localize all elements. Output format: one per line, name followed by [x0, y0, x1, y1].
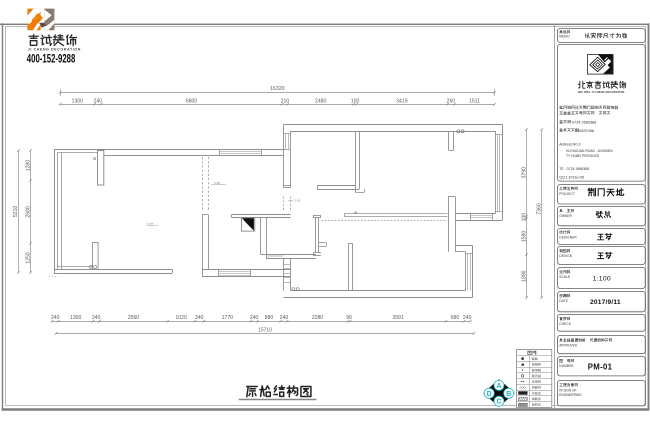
svg-text:400-152-9288: 400-152-9288	[27, 53, 76, 66]
svg-text:340: 340	[195, 315, 204, 321]
svg-text:1770: 1770	[222, 315, 233, 321]
svg-text:240: 240	[463, 315, 472, 321]
svg-text:CHECK: CHECK	[559, 322, 571, 326]
svg-text:B: B	[506, 391, 511, 398]
svg-text:5210: 5210	[13, 206, 19, 217]
svg-text:2280: 2280	[312, 315, 323, 321]
svg-text:D: D	[487, 391, 492, 398]
svg-text:HUYAGUAN ROAD , JINGMEN: HUYAGUAN ROAD , JINGMEN	[566, 149, 613, 153]
svg-text:TE : 0724 2689388: TE : 0724 2689388	[559, 167, 589, 171]
svg-text:3790: 3790	[521, 167, 527, 178]
svg-text:3591: 3591	[392, 315, 403, 321]
svg-text:2480: 2480	[315, 99, 326, 105]
svg-text:1890: 1890	[521, 270, 527, 281]
svg-text:210: 210	[281, 99, 290, 105]
svg-text:OWNER: OWNER	[559, 214, 572, 218]
svg-text:NUMBER: NUMBER	[559, 364, 574, 368]
svg-text:SCALE: SCALE	[559, 275, 570, 279]
svg-text:k.zal: k.zal	[147, 221, 154, 225]
svg-text:540837066: 540837066	[575, 129, 594, 133]
svg-text:A: A	[497, 383, 502, 390]
svg-text:880: 880	[265, 315, 274, 321]
svg-text:1511: 1511	[469, 99, 480, 105]
svg-text:240: 240	[94, 99, 103, 105]
svg-text:TY HUBEI PROVINCE: TY HUBEI PROVINCE	[566, 154, 600, 158]
svg-text:DESIGNER: DESIGNER	[559, 235, 577, 239]
svg-text:DATE: DATE	[559, 299, 568, 303]
svg-text:2.61: 2.61	[295, 199, 301, 203]
svg-text:ENGINEERING: ENGINEERING	[559, 393, 582, 397]
svg-text:1300: 1300	[70, 315, 81, 321]
svg-text:6800: 6800	[186, 99, 197, 105]
svg-text:1:100: 1:100	[593, 276, 612, 283]
svg-text:APPROVED: APPROVED	[559, 344, 577, 348]
svg-text:MEMO: MEMO	[559, 35, 570, 39]
svg-text:240: 240	[280, 315, 289, 321]
svg-text:IN SIGN OF: IN SIGN OF	[559, 388, 576, 392]
svg-text:QQ:1.6731e+06: QQ:1.6731e+06	[559, 175, 584, 179]
svg-text:C: C	[497, 399, 502, 406]
svg-text:1020: 1020	[175, 315, 186, 321]
svg-text:16320: 16320	[270, 86, 285, 92]
svg-text:15710: 15710	[258, 328, 272, 334]
svg-text:1300: 1300	[72, 99, 83, 105]
svg-text:100: 100	[521, 213, 527, 222]
svg-text:2560: 2560	[128, 315, 139, 321]
svg-text:7360: 7360	[537, 203, 543, 214]
svg-text:1280: 1280	[25, 160, 31, 171]
svg-text:680: 680	[451, 315, 460, 321]
svg-text:(XX): (XX)	[520, 386, 526, 390]
svg-text:90: 90	[346, 315, 352, 321]
svg-text:100: 100	[351, 99, 360, 105]
svg-text:260: 260	[447, 99, 456, 105]
svg-text:2.86: 2.86	[214, 181, 220, 185]
svg-text:240: 240	[250, 315, 259, 321]
svg-text:JI CHENG DECORATION: JI CHENG DECORATION	[28, 48, 81, 52]
svg-text:240: 240	[51, 315, 60, 321]
svg-text:0724 2689388: 0724 2689388	[572, 121, 596, 125]
svg-text:240: 240	[92, 315, 101, 321]
svg-text:1590: 1590	[521, 231, 527, 242]
svg-text:1250: 1250	[25, 252, 31, 263]
svg-text:Address:NO.2: Address:NO.2	[559, 143, 580, 147]
svg-text:PM-01: PM-01	[588, 362, 613, 371]
svg-text:2680: 2680	[25, 206, 31, 217]
svg-text:2017/9/11: 2017/9/11	[590, 299, 621, 306]
svg-text:PROJECT: PROJECT	[559, 192, 575, 196]
svg-text:DESIGN: DESIGN	[559, 254, 572, 258]
svg-text:3419: 3419	[396, 99, 407, 105]
svg-text:BEI JING JI CHENG DECORATION: BEI JING JI CHENG DECORATION	[578, 90, 624, 94]
